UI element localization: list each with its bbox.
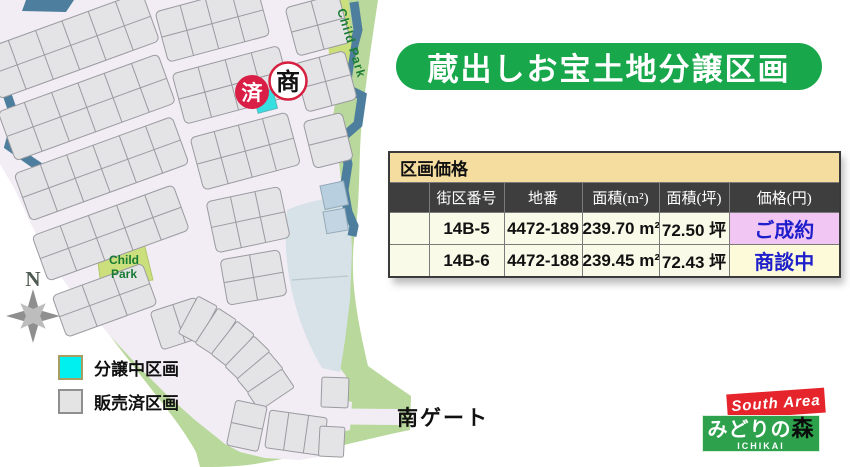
for-sale-swatch (58, 355, 83, 380)
status-badge: ご成約 (729, 213, 840, 245)
negotiating-badge-label: 商 (276, 68, 300, 96)
col-header-area-tsubo: 面積(坪) (659, 183, 729, 213)
child-park-mid-label: Child Park (109, 253, 139, 281)
sold-badge: 済 (235, 75, 269, 109)
area-tsubo-cell: 72.43 坪 (659, 245, 729, 278)
lot-no-cell: 4472-188 (504, 245, 582, 278)
col-header-block: 街区番号 (429, 183, 504, 213)
logo-name: みどりの森 (703, 418, 819, 440)
legend-item-sold: 販売済区画 (58, 389, 179, 414)
status-badge: 商談中 (729, 245, 840, 278)
title-banner: 蔵出しお宝土地分譲区画 (396, 43, 822, 90)
legend-label: 分譲中区画 (94, 355, 179, 380)
plot-block (220, 250, 287, 306)
corner-cell (389, 213, 429, 245)
block-no-cell: 14B-5 (429, 213, 504, 245)
col-header-lot: 地番 (504, 183, 582, 213)
plot-block (321, 377, 349, 408)
svg-text:Park: Park (111, 267, 137, 281)
company-logo: みどりの森 ICHIKAI (702, 415, 820, 452)
svg-text:Child: Child (109, 253, 139, 267)
block-no-cell: 14B-6 (429, 245, 504, 278)
price-table-title: 区画価格 (389, 152, 840, 183)
area-m2-cell: 239.45 m² (582, 245, 659, 278)
logo-subtitle: ICHIKAI (703, 442, 819, 451)
table-row: 14B-5 4472-189 239.70 m² 72.50 坪 ご成約 (389, 213, 840, 245)
lot-no-cell: 4472-189 (504, 213, 582, 245)
price-table-title-row: 区画価格 (389, 152, 840, 183)
legend-item-for-sale: 分譲中区画 (58, 355, 179, 380)
sold-swatch (58, 389, 83, 414)
south-gate-label: 南ゲート (397, 402, 489, 432)
logo-name-accent: 森 (791, 416, 814, 441)
retaining-wall-top (22, 0, 74, 12)
table-row: 14B-6 4472-188 239.45 m² 72.43 坪 商談中 (389, 245, 840, 278)
flyer-page: { "banner": { "title": "蔵出しお宝土地分譲区画", "b… (0, 0, 850, 467)
col-header-area-m2: 面積(m²) (582, 183, 659, 213)
area-m2-cell: 239.70 m² (582, 213, 659, 245)
map-legend: 分譲中区画 販売済区画 (58, 355, 179, 423)
logo-name-main: みどりの (707, 419, 791, 441)
corner-cell (389, 183, 429, 213)
sold-badge-label: 済 (242, 81, 264, 105)
col-header-price: 価格(円) (729, 183, 840, 213)
price-table: 区画価格 街区番号 地番 面積(m²) 面積(坪) 価格(円) 14B-5 44… (388, 151, 839, 278)
price-table-header-row: 街区番号 地番 面積(m²) 面積(坪) 価格(円) (389, 183, 840, 213)
plot-block (318, 426, 345, 457)
plot-block (265, 410, 328, 456)
area-tsubo-cell: 72.50 坪 (659, 213, 729, 245)
negotiating-badge: 商 (270, 63, 307, 100)
legend-label: 販売済区画 (94, 389, 179, 414)
corner-cell (389, 245, 429, 278)
compass-n-label: N (25, 267, 40, 291)
